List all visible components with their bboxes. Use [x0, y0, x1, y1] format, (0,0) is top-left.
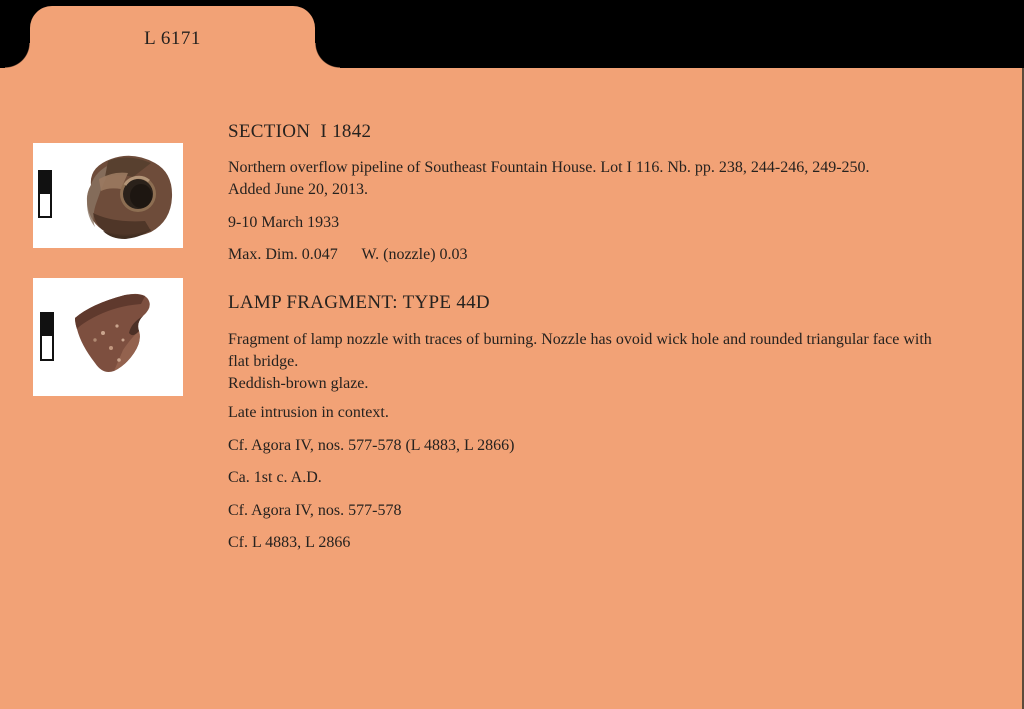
reference-note-2: Cf. Agora IV, nos. 577-578 [228, 500, 401, 522]
object-heading: LAMP FRAGMENT: TYPE 44D [228, 292, 490, 314]
object-number-label: L 6171 [144, 24, 201, 50]
dating-note: Ca. 1st c. A.D. [228, 467, 322, 489]
section-description: Northern overflow pipeline of Southeast … [228, 157, 940, 201]
scale-bar [41, 313, 53, 360]
dimensions-line: Max. Dim. 0.047 W. (nozzle) 0.03 [228, 244, 468, 266]
reference-note-1: Cf. Agora IV, nos. 577-578 (L 4883, L 28… [228, 435, 515, 457]
folder-tab: L 6171 [30, 6, 315, 68]
tab-flare-left [5, 43, 30, 68]
excavation-date: 9-10 March 1933 [228, 212, 339, 234]
context-note: Late intrusion in context. [228, 402, 389, 424]
lamp-fragment-top-view-image [33, 143, 183, 248]
artifact-photo-top-view [33, 143, 183, 248]
lamp-fragment-side-view-image [33, 278, 183, 396]
reference-note-3: Cf. L 4883, L 2866 [228, 532, 350, 554]
artifact-photo-side-view [33, 278, 183, 396]
object-description: Fragment of lamp nozzle with traces of b… [228, 329, 940, 395]
tab-flare-right [315, 43, 340, 68]
section-heading: SECTION I 1842 [228, 121, 371, 143]
catalog-card-page: L 6171 [0, 0, 1024, 709]
scale-bar [39, 171, 51, 217]
